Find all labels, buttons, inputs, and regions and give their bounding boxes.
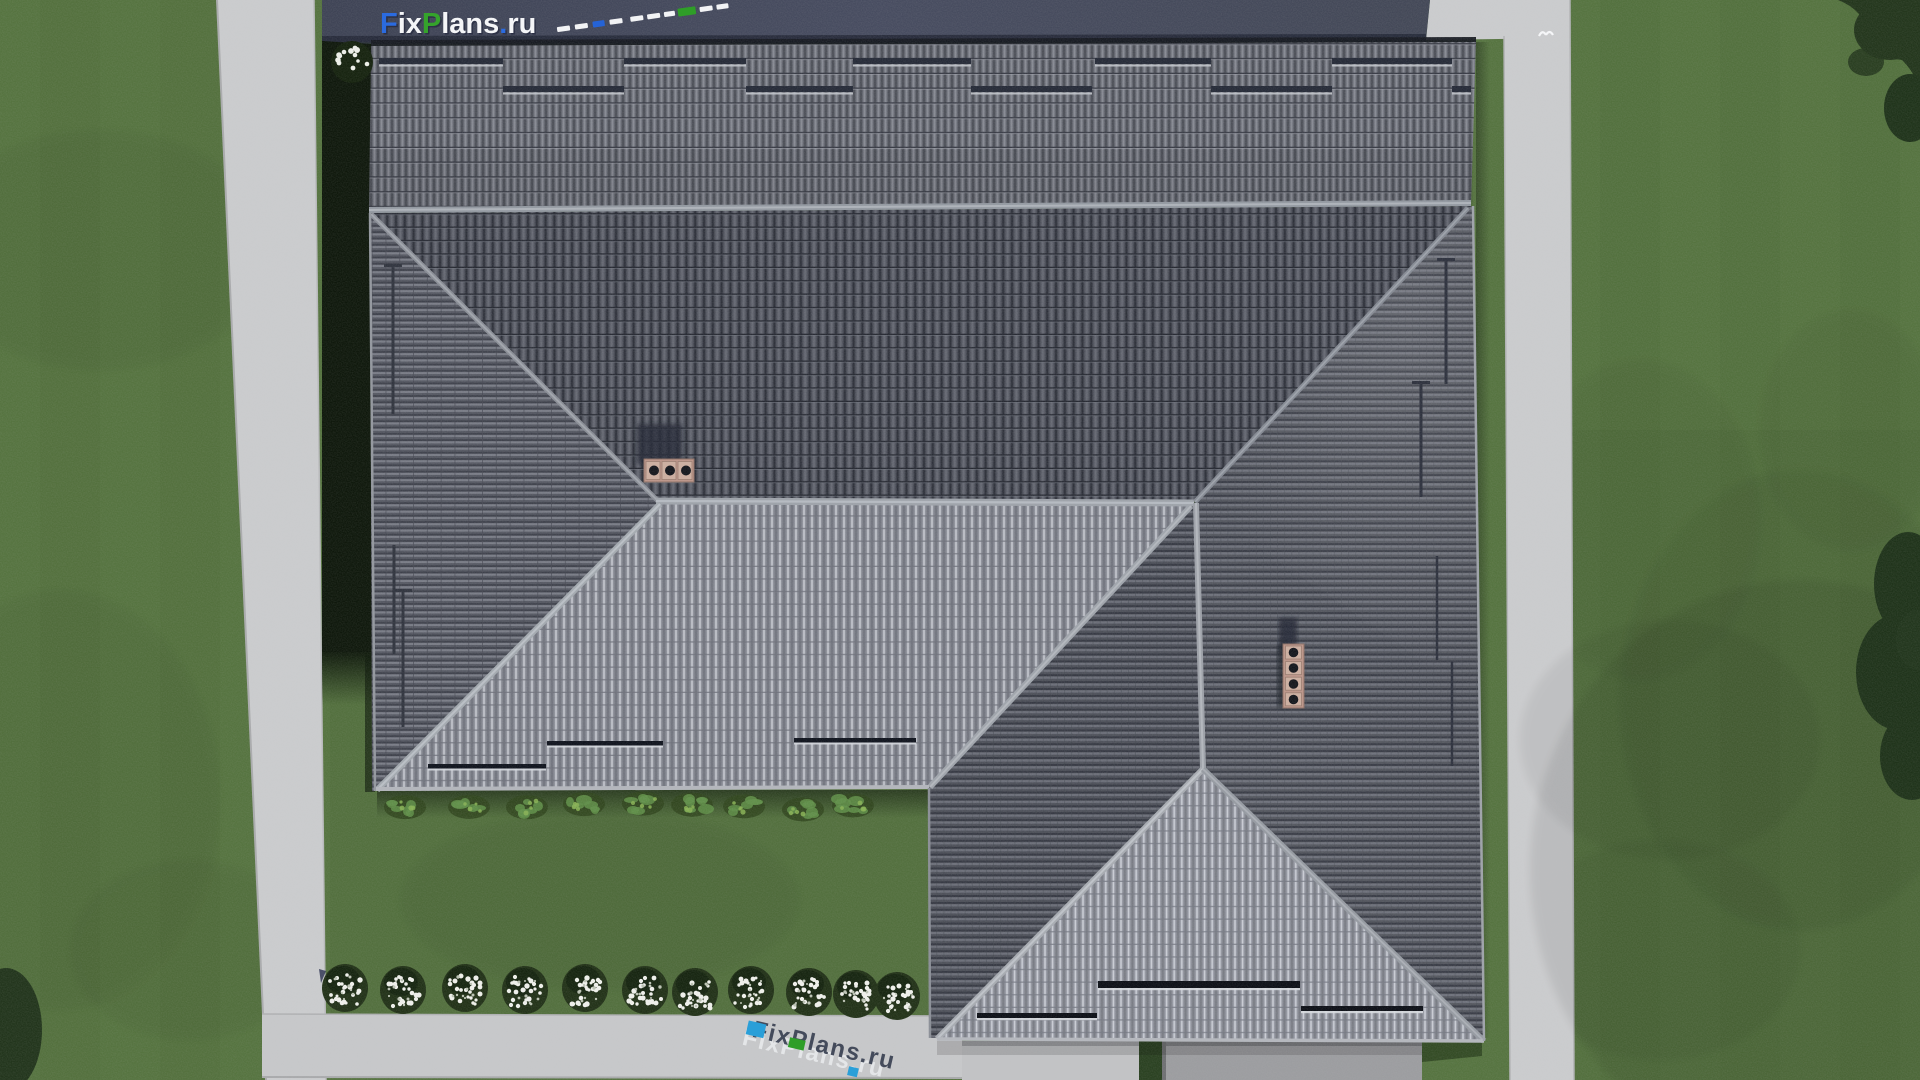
svg-text:FixPlans.ru: FixPlans.ru [380,8,536,40]
